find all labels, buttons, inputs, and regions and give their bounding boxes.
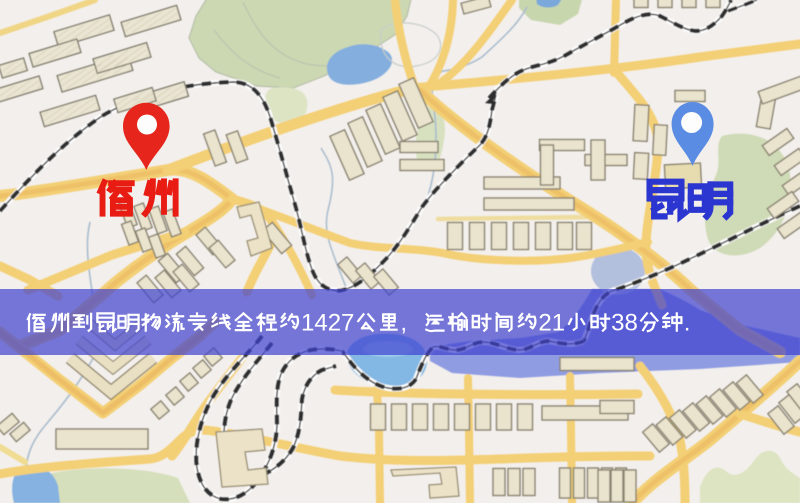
svg-text:38: 38 [611, 310, 638, 337]
svg-text:,: , [400, 310, 407, 337]
svg-text:.: . [684, 310, 691, 337]
svg-text:21: 21 [538, 310, 565, 337]
svg-text:1427: 1427 [301, 310, 354, 337]
